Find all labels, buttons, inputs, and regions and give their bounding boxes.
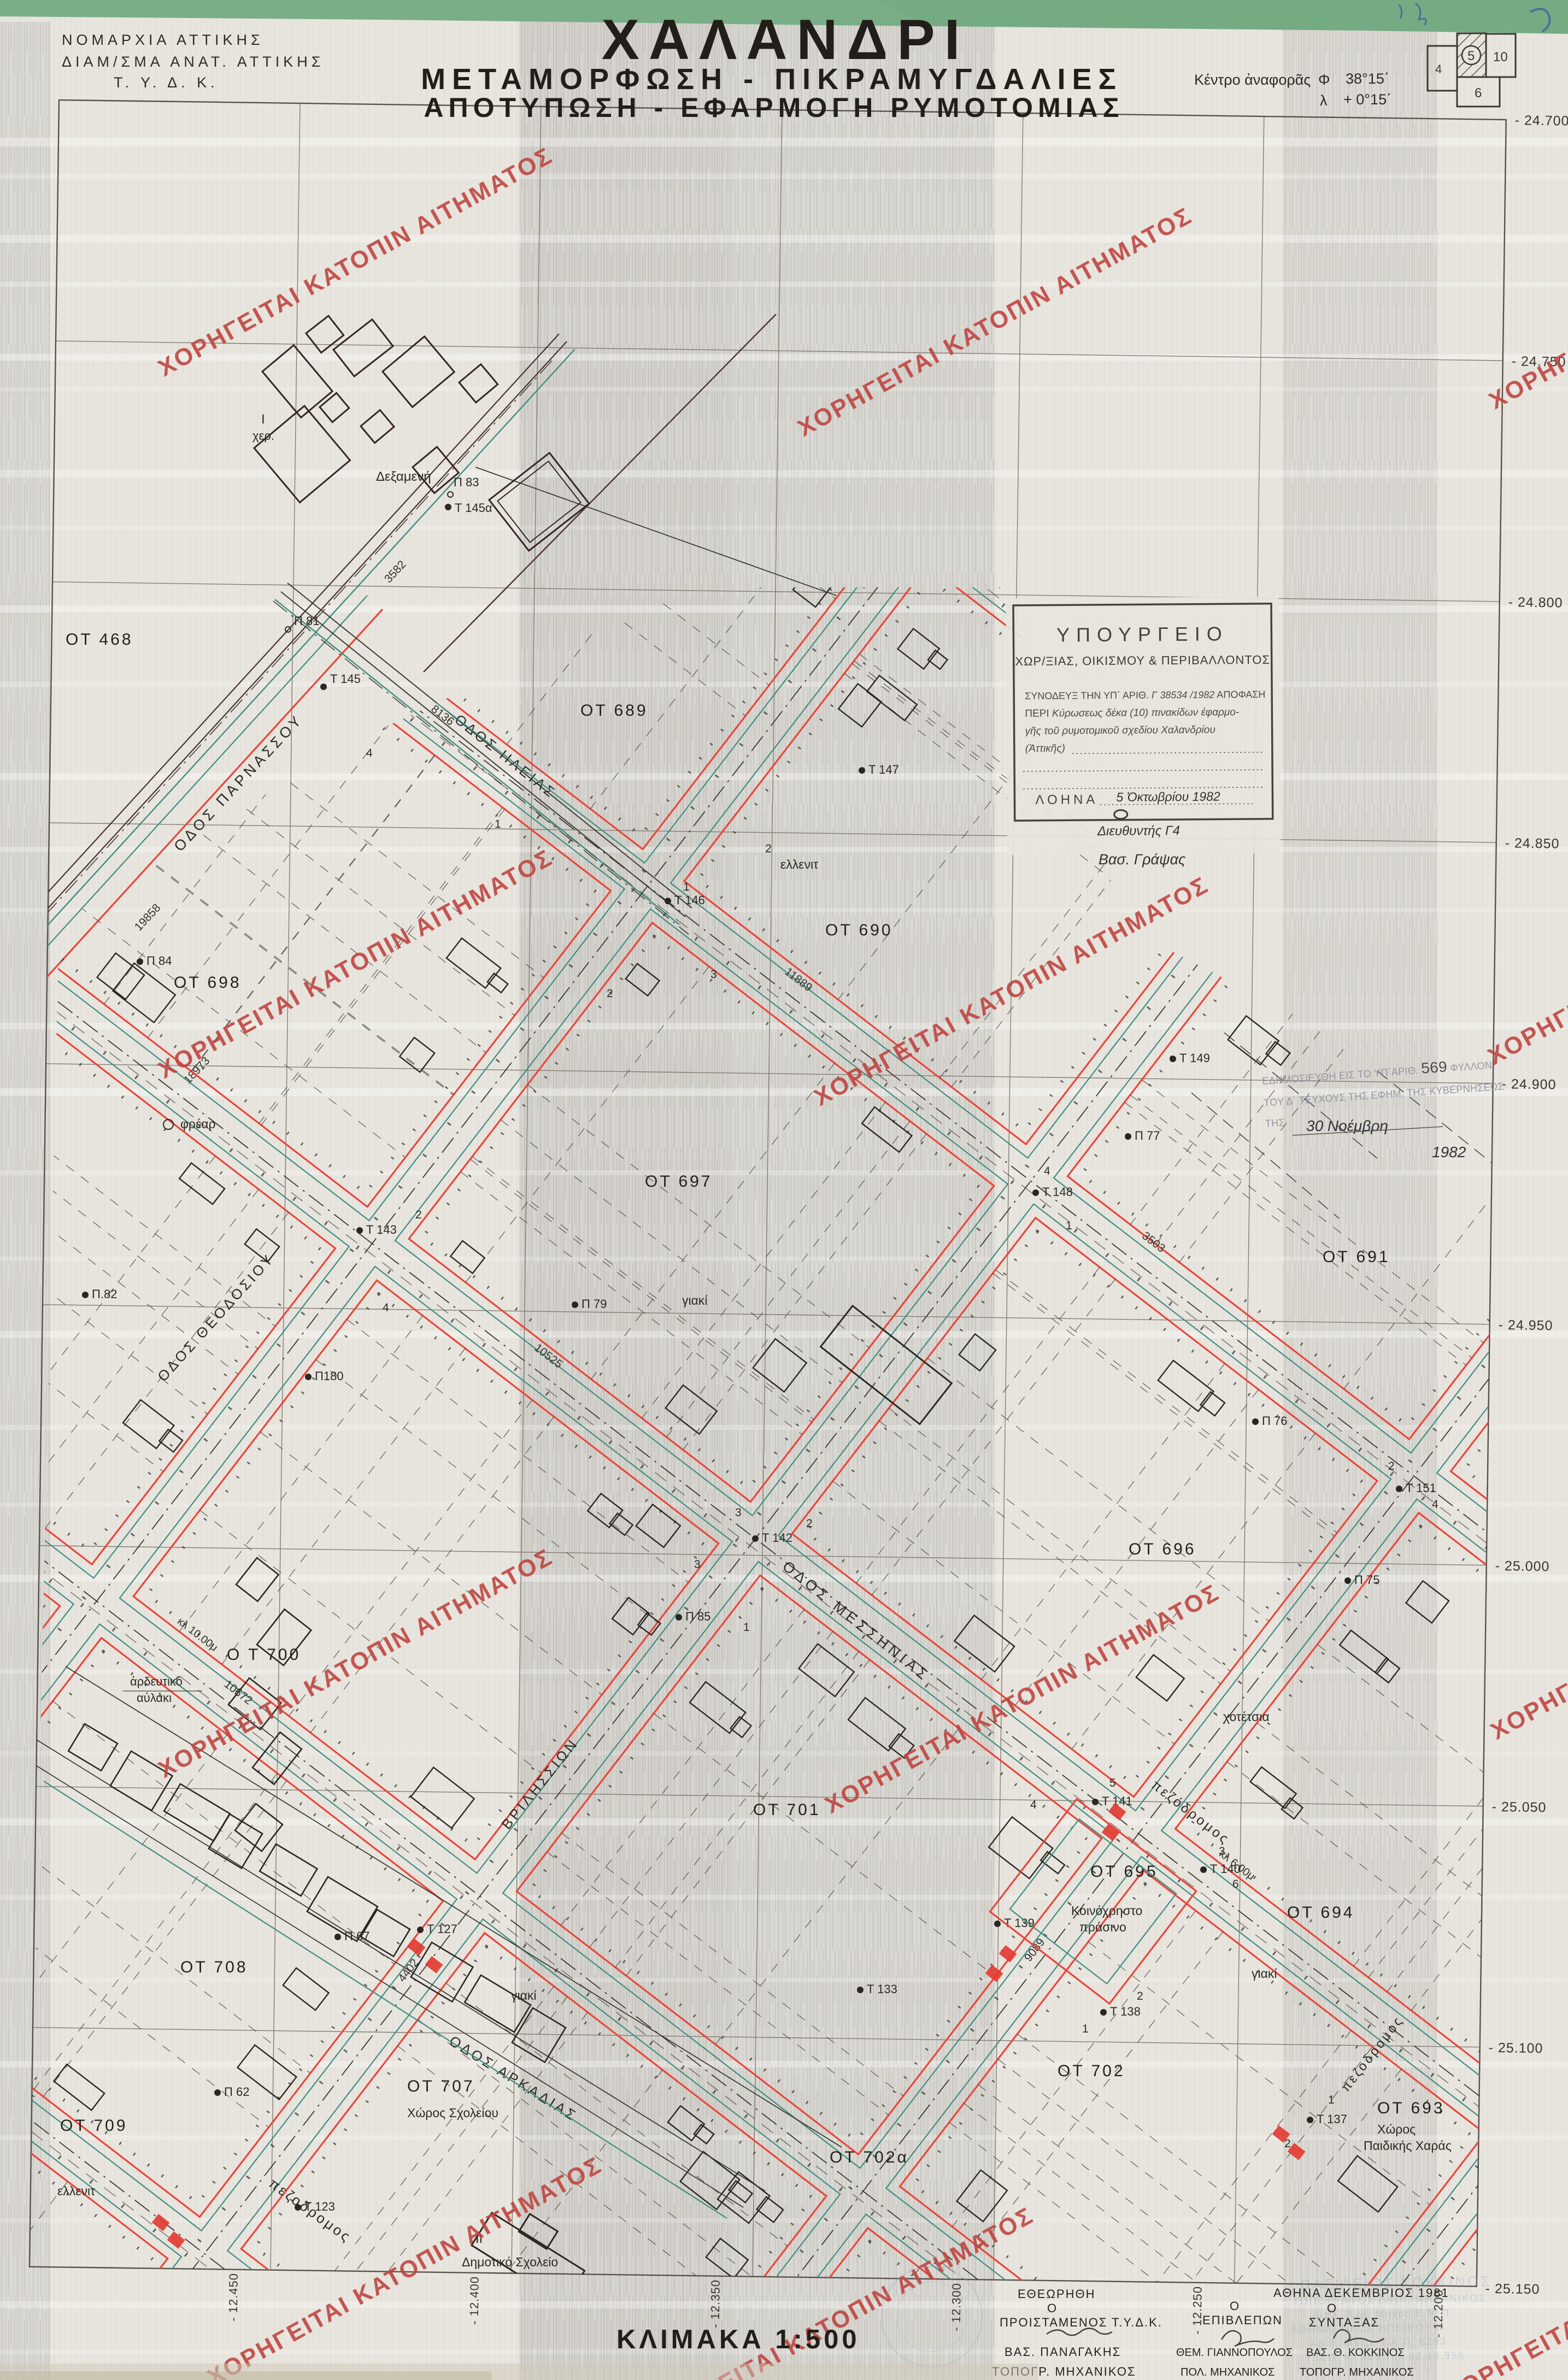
svg-text:Τ 146: Τ 146 <box>674 893 705 907</box>
svg-text:- 12.300: - 12.300 <box>949 2283 964 2331</box>
svg-text:Ο: Ο <box>1327 2301 1337 2315</box>
svg-text:3: 3 <box>710 968 717 981</box>
svg-text:ἀρδευτικό: ἀρδευτικό <box>130 1675 183 1688</box>
svg-text:Π.82: Π.82 <box>92 1287 117 1301</box>
svg-text:ΑΘΗΝΑ ΔΕΚΕΜΒΡΙΟΣ 1981: ΑΘΗΝΑ ΔΕΚΕΜΒΡΙΟΣ 1981 <box>1273 2286 1449 2300</box>
svg-text:4: 4 <box>366 747 373 759</box>
svg-text:Τ 145α: Τ 145α <box>455 501 492 515</box>
svg-text:ΕΘΕΩΡΗΘΗ: ΕΘΕΩΡΗΘΗ <box>1018 2287 1095 2301</box>
svg-text:6: 6 <box>1232 1878 1239 1890</box>
svg-text:ΟΤ 693: ΟΤ 693 <box>1377 2099 1445 2117</box>
svg-text:Π 85: Π 85 <box>685 1610 710 1623</box>
svg-text:Ο Τ 700: Ο Τ 700 <box>227 1646 301 1664</box>
svg-text:πράσινο: πράσινο <box>1079 1920 1126 1934</box>
svg-text:Τ 143: Τ 143 <box>366 1223 397 1236</box>
svg-text:ΔΙΑΜ/ΣΜΑ ΑΝΑΤ. ΑΤΤΙΚΗΣ: ΔΙΑΜ/ΣΜΑ ΑΝΑΤ. ΑΤΤΙΚΗΣ <box>62 54 325 70</box>
svg-text:Π 84: Π 84 <box>146 954 172 968</box>
svg-text:2: 2 <box>806 1517 813 1530</box>
svg-text:Τ 149: Τ 149 <box>1179 1051 1210 1065</box>
svg-text:1: 1 <box>1066 1220 1072 1232</box>
svg-text:γῆς τοῦ ρυμοτομικοῦ σχεδίου Χα: γῆς τοῦ ρυμοτομικοῦ σχεδίου Χαλανδρίου <box>1025 724 1215 737</box>
svg-text:3: 3 <box>1219 1845 1225 1858</box>
svg-text:ΣΥΝΟΔΕΥΞ ΤΗΝ ΥΠ΄ ΑΡΙΘ. Γ 38534: ΣΥΝΟΔΕΥΞ ΤΗΝ ΥΠ΄ ΑΡΙΘ. Γ 38534 /1982 ΑΠΟ… <box>1025 689 1265 702</box>
svg-text:- 24.700: - 24.700 <box>1515 113 1568 128</box>
svg-text:ΝΟΜΑΡΧΙΑ ΑΤΤΙΚΗΣ: ΝΟΜΑΡΧΙΑ ΑΤΤΙΚΗΣ <box>62 32 264 48</box>
svg-text:5: 5 <box>1109 1777 1116 1789</box>
svg-text:Τ 123: Τ 123 <box>304 2200 335 2213</box>
svg-text:ΒΑΣ. Θ. ΚΟΚΚΙΝΟΣ: ΒΑΣ. Θ. ΚΟΚΚΙΝΟΣ <box>1306 2347 1405 2359</box>
svg-text:Κοινόχρηστο: Κοινόχρηστο <box>1071 1904 1142 1918</box>
svg-text:Π 76: Π 76 <box>1262 1414 1287 1428</box>
svg-text:ΚΛΙΜΑΚΑ 1:500: ΚΛΙΜΑΚΑ 1:500 <box>616 2325 860 2354</box>
svg-text:ελλενιτ: ελλενιτ <box>57 2184 95 2198</box>
svg-text:ΟΤ 702α: ΟΤ 702α <box>830 2148 909 2166</box>
svg-text:Παιδικής Χαράς: Παιδικής Χαράς <box>1364 2139 1452 2153</box>
svg-text:γιακί: γιακί <box>1252 1966 1277 1981</box>
svg-text:- 12.250: - 12.250 <box>1190 2286 1205 2335</box>
svg-text:3: 3 <box>735 1506 742 1519</box>
svg-text:ΘΕΜ. ΓΙΑΝΝΟΠΟΥΛΟΣ: ΘΕΜ. ΓΙΑΝΝΟΠΟΥΛΟΣ <box>1176 2347 1293 2359</box>
svg-text:ελλενιτ: ελλενιτ <box>780 857 818 871</box>
svg-text:30 Νοέμβρη: 30 Νοέμβρη <box>1306 1117 1388 1134</box>
svg-text:+ 0°15΄: + 0°15΄ <box>1343 91 1391 108</box>
svg-text:Βασ. Γράψας: Βασ. Γράψας <box>1099 851 1186 868</box>
svg-text:- 25.000: - 25.000 <box>1495 1558 1550 1574</box>
svg-text:- 12.450: - 12.450 <box>226 2273 240 2322</box>
svg-text:ΠΟΛ. ΜΗΧΑΝΙΚΟΣ: ΠΟΛ. ΜΗΧΑΝΙΚΟΣ <box>1181 2366 1275 2378</box>
svg-text:ΟΤ 709: ΟΤ 709 <box>60 2117 128 2135</box>
svg-text:φρέαρ: φρέαρ <box>180 1117 216 1131</box>
svg-text:ΑΠΟΤΥΠΩΣΗ - ΕΦΑΡΜΟΓΗ ΡΥΜΟΤΟΜΙΑ: ΑΠΟΤΥΠΩΣΗ - ΕΦΑΡΜΟΓΗ ΡΥΜΟΤΟΜΙΑΣ <box>424 92 1124 123</box>
svg-text:ΟΤ 694: ΟΤ 694 <box>1287 1904 1355 1922</box>
svg-text:χοτέτσια: χοτέτσια <box>1223 1710 1270 1724</box>
svg-text:ΒΑΣ. ΠΑΝΑΓΑΚΗΣ: ΒΑΣ. ΠΑΝΑΓΑΚΗΣ <box>1005 2345 1121 2359</box>
svg-text:2: 2 <box>607 987 613 1000</box>
svg-text:Τ 148: Τ 148 <box>1042 1185 1073 1199</box>
svg-text:Π 81: Π 81 <box>294 614 319 628</box>
svg-text:Τ 140: Τ 140 <box>1210 1862 1241 1876</box>
svg-text:1: 1 <box>1082 2023 1089 2035</box>
svg-text:1: 1 <box>683 881 690 893</box>
svg-text:Τ 127: Τ 127 <box>427 1922 457 1936</box>
svg-text:2: 2 <box>765 843 772 855</box>
svg-text:Τ 145: Τ 145 <box>330 672 361 686</box>
svg-text:5: 5 <box>1467 49 1475 63</box>
svg-text:4: 4 <box>1432 1498 1438 1511</box>
svg-text:Χώρος Σχολείου: Χώρος Σχολείου <box>407 2106 498 2120</box>
svg-text:10: 10 <box>1493 50 1508 64</box>
svg-text:- 24.850: - 24.850 <box>1505 835 1560 851</box>
svg-text:Ο: Ο <box>1047 2301 1058 2315</box>
svg-text:ΟΤ 702: ΟΤ 702 <box>1058 2062 1125 2080</box>
svg-text:Π 79: Π 79 <box>582 1297 607 1311</box>
svg-text:4: 4 <box>1435 62 1442 76</box>
svg-text:4: 4 <box>383 1301 389 1314</box>
svg-text:ΠΡΟΙΣΤΑΜΕΝΟΣ Τ.Υ.Δ.Κ.: ΠΡΟΙΣΤΑΜΕΝΟΣ Τ.Υ.Δ.Κ. <box>1000 2316 1162 2329</box>
svg-text:Τ 137: Τ 137 <box>1317 2112 1347 2126</box>
svg-text:Τ 139: Τ 139 <box>1004 1916 1035 1930</box>
svg-text:ΠΕΡΙ Κύρωσεως δέκα (10) πινακί: ΠΕΡΙ Κύρωσεως δέκα (10) πινακίδων ἐφαρμο… <box>1025 706 1239 720</box>
svg-text:Δεξαμενή: Δεξαμενή <box>376 469 431 484</box>
svg-text:ΟΤ 690: ΟΤ 690 <box>825 921 893 939</box>
svg-text:Διευθυντής Γ4: Διευθυντής Γ4 <box>1097 823 1180 839</box>
svg-text:ΟΤ 468: ΟΤ 468 <box>66 631 133 649</box>
svg-text:Π 75: Π 75 <box>1354 1573 1379 1587</box>
svg-text:χερ.: χερ. <box>252 429 274 443</box>
svg-text:ΤΗΣ: ΤΗΣ <box>1265 1117 1285 1129</box>
svg-text:(Ἀττικῆς): (Ἀττικῆς) <box>1025 743 1065 755</box>
svg-text:- 25.050: - 25.050 <box>1492 1799 1547 1815</box>
svg-text:Τ 151: Τ 151 <box>1406 1481 1436 1495</box>
svg-text:Τ. Υ. Δ. Κ.: Τ. Υ. Δ. Κ. <box>114 74 219 91</box>
svg-text:ΟΤ 707: ΟΤ 707 <box>407 2077 475 2095</box>
svg-text:Κέντρο ἀναφορᾶς: Κέντρο ἀναφορᾶς <box>1194 72 1311 88</box>
svg-text:4: 4 <box>1030 1799 1037 1811</box>
svg-text:ΧΑΛΑΝΔΡΙ: ΧΑΛΑΝΔΡΙ <box>601 8 969 72</box>
svg-text:- 24.800: - 24.800 <box>1508 594 1563 610</box>
svg-text:ΟΤ 691: ΟΤ 691 <box>1323 1248 1390 1266</box>
svg-text:ΟΤ 708: ΟΤ 708 <box>180 1958 248 1976</box>
svg-text:2: 2 <box>1137 1990 1143 2002</box>
svg-text:- 25.150: - 25.150 <box>1485 2281 1540 2297</box>
svg-text:2: 2 <box>415 1209 422 1221</box>
svg-text:Τ 133: Τ 133 <box>867 1982 897 1996</box>
svg-text:1982: 1982 <box>1432 1144 1466 1160</box>
svg-text:γιακί: γιακί <box>682 1293 708 1307</box>
svg-text:Δημοτικό Σχολείο: Δημοτικό Σχολείο <box>462 2255 558 2269</box>
svg-text:ΕΠΙΒΛΕΠΩΝ: ΕΠΙΒΛΕΠΩΝ <box>1202 2313 1283 2327</box>
svg-text:Π180: Π180 <box>315 1369 344 1383</box>
svg-text:3: 3 <box>694 1558 701 1571</box>
svg-text:ΣΥΝΤΑΞΑΣ: ΣΥΝΤΑΞΑΣ <box>1309 2316 1379 2329</box>
svg-text:38°15΄: 38°15΄ <box>1346 70 1389 87</box>
svg-text:- 24.900: - 24.900 <box>1502 1076 1557 1092</box>
svg-text:ΟΤ 689: ΟΤ 689 <box>580 702 648 720</box>
svg-text:ΟΤ 696: ΟΤ 696 <box>1129 1540 1196 1558</box>
svg-text:ΥΠΟΥΡΓΕΙΟ: ΥΠΟΥΡΓΕΙΟ <box>1056 622 1229 646</box>
svg-text:ΤΟΠΟΓΡ. ΜΗΧΑΝΙΚΟΣ: ΤΟΠΟΓΡ. ΜΗΧΑΝΙΚΟΣ <box>1300 2366 1414 2378</box>
svg-text:ΟΤ 698: ΟΤ 698 <box>174 974 242 992</box>
svg-text:1: 1 <box>495 818 501 830</box>
svg-text:ΟΤ 701: ΟΤ 701 <box>753 1801 821 1819</box>
svg-text:Τ 142: Τ 142 <box>762 1531 792 1545</box>
svg-text:ΜΕΤΑΜΟΡΦΩΣΗ - ΠΙΚΡΑΜΥΓΔΑΛΙΕΣ: ΜΕΤΑΜΟΡΦΩΣΗ - ΠΙΚΡΑΜΥΓΔΑΛΙΕΣ <box>421 63 1123 96</box>
svg-text:ΛΟΗΝΑ: ΛΟΗΝΑ <box>1035 792 1098 808</box>
svg-text:- 24.950: - 24.950 <box>1499 1317 1553 1333</box>
svg-text:1: 1 <box>743 1621 750 1634</box>
svg-text:Τ 138: Τ 138 <box>1110 2005 1141 2018</box>
svg-text:Π 83: Π 83 <box>454 475 479 489</box>
svg-text:5 Ὀκτωβρίου 1982: 5 Ὀκτωβρίου 1982 <box>1116 789 1220 804</box>
svg-text:Π 77: Π 77 <box>1135 1129 1160 1142</box>
svg-text:1: 1 <box>1328 2094 1335 2106</box>
svg-text:λ: λ <box>1320 92 1328 109</box>
svg-text:Ο: Ο <box>1230 2299 1240 2313</box>
svg-text:Φ: Φ <box>1318 72 1330 88</box>
svg-text:- 12.350: - 12.350 <box>708 2279 723 2328</box>
svg-text:- 12.400: - 12.400 <box>467 2276 481 2325</box>
svg-text:Χώρος: Χώρος <box>1377 2122 1416 2136</box>
svg-text:4: 4 <box>1044 1165 1050 1177</box>
svg-text:Ι: Ι <box>261 412 265 427</box>
svg-text:6: 6 <box>1475 86 1482 101</box>
svg-text:αὐλάκι: αὐλάκι <box>137 1691 172 1705</box>
svg-text:ΧΩΡ/ΞΙΑΣ, ΟΙΚΙΣΜΟΥ & ΠΕΡΙΒΑΛΛΟ: ΧΩΡ/ΞΙΑΣ, ΟΙΚΙΣΜΟΥ & ΠΕΡΙΒΑΛΛΟΝΤΟΣ <box>1015 653 1270 668</box>
svg-text:Π 62: Π 62 <box>224 2085 249 2099</box>
svg-text:- 25.100: - 25.100 <box>1489 2040 1543 2056</box>
svg-text:2: 2 <box>1388 1460 1395 1472</box>
svg-text:ΟΤ 697: ΟΤ 697 <box>645 1173 713 1191</box>
svg-text:Τ 147: Τ 147 <box>868 763 899 776</box>
